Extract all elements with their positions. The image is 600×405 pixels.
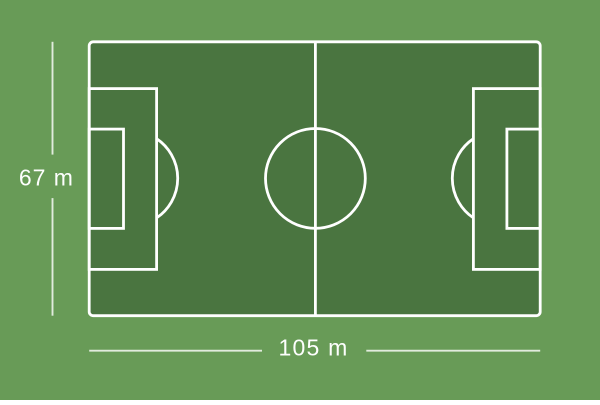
svg-text:67 m: 67 m bbox=[19, 164, 74, 190]
svg-text:105 m: 105 m bbox=[279, 335, 349, 361]
